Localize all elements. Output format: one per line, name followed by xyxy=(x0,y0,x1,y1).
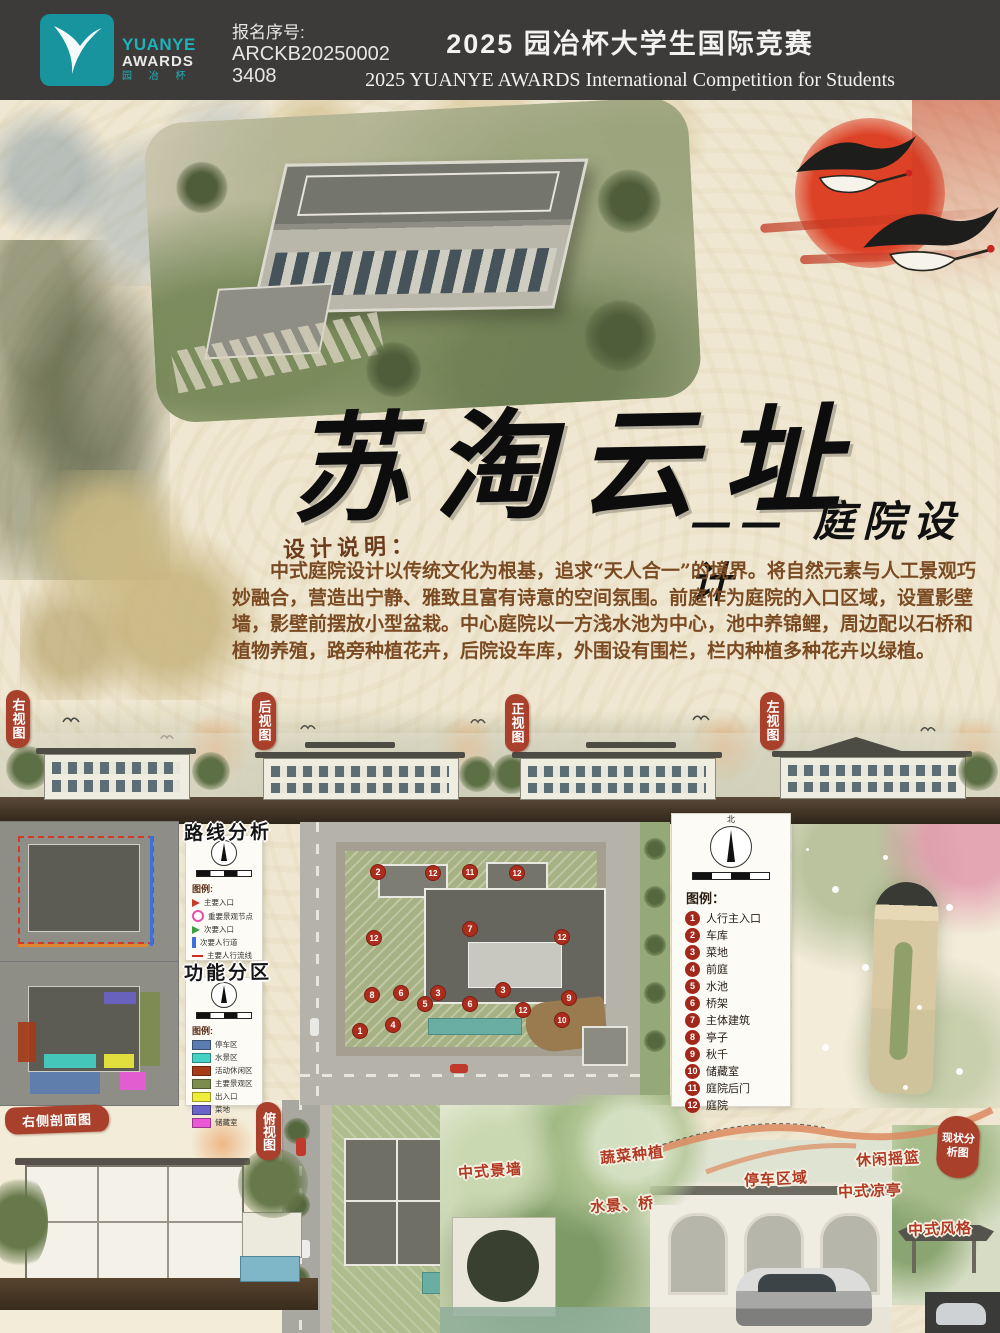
zone-color-swatch xyxy=(192,1105,211,1115)
building-facade-art xyxy=(263,758,459,800)
site-analysis-stamp: 现状分析图 xyxy=(935,1115,980,1179)
header-bar: YUANYE AWARDS 园 冶 杯 报名序号: ARCKB20250002 … xyxy=(0,0,1000,100)
route-line-art xyxy=(18,836,154,944)
street-tree-strip xyxy=(640,822,670,1105)
logo-yuanye-label: YUANYE xyxy=(122,36,196,54)
master-legend-label: 人行主入口 xyxy=(706,910,761,926)
zone-legend-label: 活动休闲区 xyxy=(215,1065,253,1076)
plan-marker: 3 xyxy=(495,982,511,998)
car-art xyxy=(296,1138,306,1156)
inner-courtyard-art xyxy=(468,942,562,988)
zone-legend-label: 出入口 xyxy=(215,1091,238,1102)
zone-legend-label: 停车区 xyxy=(215,1039,238,1050)
master-legend-item: 2车库 xyxy=(685,928,790,942)
zone-legend-label: 储藏室 xyxy=(215,1117,238,1128)
plan-marker: 12 xyxy=(515,1002,531,1018)
zone-legend-item: 出入口 xyxy=(192,1091,262,1102)
legend-number-badge: 11 xyxy=(685,1081,700,1096)
tree-art xyxy=(644,886,666,908)
north-compass-icon xyxy=(211,982,237,1008)
route-analysis-title: 路线分析 xyxy=(184,817,272,846)
plan-marker: 5 xyxy=(417,996,433,1012)
zone-legend-item: 储藏室 xyxy=(192,1117,262,1128)
car-windshield-art xyxy=(758,1274,836,1292)
route-legend-label: 重要景观节点 xyxy=(208,911,253,922)
legend-number-badge: 7 xyxy=(685,1013,700,1028)
zone-legend-item: 活动休闲区 xyxy=(192,1065,262,1076)
plan-marker: 6 xyxy=(393,985,409,1001)
arch-opening-art xyxy=(668,1213,728,1295)
right-elevation-drawing xyxy=(10,740,225,800)
north-compass-icon xyxy=(710,826,752,868)
legend-number-badge: 8 xyxy=(685,1030,700,1045)
tree-art xyxy=(644,1030,666,1052)
watercolor-lady-art xyxy=(792,818,1000,1108)
function-zone-map xyxy=(0,962,178,1105)
legend-number-badge: 9 xyxy=(685,1047,700,1062)
zone-color-swatch xyxy=(192,1079,211,1089)
section-wall-art xyxy=(242,1212,302,1258)
logo-awards-label: AWARDS xyxy=(122,54,196,70)
front-elevation-drawing xyxy=(498,742,738,800)
master-legend-label: 庭院 xyxy=(706,1097,728,1113)
building-facade-art xyxy=(780,757,966,799)
photo-label: 水景、桥 xyxy=(589,1192,654,1217)
zone-legend-label: 水景区 xyxy=(215,1052,238,1063)
master-legend-item: 4前庭 xyxy=(685,962,790,976)
master-legend-label: 亭子 xyxy=(706,1029,728,1045)
back-elevation-drawing xyxy=(245,742,485,800)
zone-legend-item: 水景区 xyxy=(192,1052,262,1063)
window-row-art xyxy=(52,762,180,774)
route-legend-dash-icon xyxy=(192,955,203,957)
roof-art xyxy=(305,742,395,748)
master-legend-label: 水池 xyxy=(706,978,728,994)
master-legend-label: 秋千 xyxy=(706,1046,728,1062)
top-view-stamp: 俯视图 xyxy=(256,1102,281,1160)
plan-marker: 8 xyxy=(364,987,380,1003)
legend-number-badge: 1 xyxy=(685,911,700,926)
tree-art xyxy=(644,982,666,1004)
building-facade-art xyxy=(520,758,716,800)
master-legend-item: 5水池 xyxy=(685,979,790,993)
tree-art xyxy=(644,838,666,860)
plan-marker: 12 xyxy=(509,865,525,881)
plan-marker: 12 xyxy=(425,865,441,881)
master-legend-list: 1人行主入口2车库3菜地4前庭5水池6桥架7主体建筑8亭子9秋千10储藏室11庭… xyxy=(672,911,790,1112)
moon-gate-wall-art xyxy=(452,1217,556,1317)
zone-legend-panel: 图例: 停车区水景区活动休闲区主要景观区出入口菜地储藏室 xyxy=(186,978,262,1105)
front-view-stamp: 正视图 xyxy=(505,694,529,752)
master-legend-label: 菜地 xyxy=(706,944,728,960)
master-legend-label: 车库 xyxy=(706,927,728,943)
compass-needle xyxy=(221,985,227,1003)
photo-label: 休闲摇篮 xyxy=(855,1146,920,1170)
section-house-drawing xyxy=(25,1165,244,1282)
legend-number-badge: 4 xyxy=(685,962,700,977)
route-legend-header: 图例: xyxy=(192,882,262,895)
scale-bar xyxy=(196,870,252,877)
photo-label: 停车区域 xyxy=(743,1166,808,1190)
master-legend-label: 主体建筑 xyxy=(706,1012,750,1028)
route-legend-circle-icon xyxy=(192,910,204,922)
pavilion-post-art xyxy=(912,1241,916,1273)
master-legend-item: 8亭子 xyxy=(685,1030,790,1044)
window-row-art xyxy=(271,783,449,793)
right-view-stamp: 右视图 xyxy=(6,690,30,748)
master-legend-item: 12庭院 xyxy=(685,1098,790,1112)
plan-marker: 11 xyxy=(462,864,478,880)
master-legend-label: 桥架 xyxy=(706,995,728,1011)
plan-marker: 3 xyxy=(430,985,446,1001)
plan-marker: 7 xyxy=(462,921,478,937)
window-row-art xyxy=(788,765,956,776)
section-pool-art xyxy=(240,1256,300,1282)
plan-marker: 6 xyxy=(462,996,478,1012)
zone-legend-list: 停车区水景区活动休闲区主要景观区出入口菜地储藏室 xyxy=(186,1039,262,1128)
scale-bar xyxy=(196,1012,252,1019)
master-legend-item: 7主体建筑 xyxy=(685,1013,790,1027)
car-art xyxy=(936,1303,986,1325)
zone-legend-header: 图例: xyxy=(192,1024,262,1037)
road-lane-art xyxy=(316,822,319,1105)
car-art xyxy=(310,1018,319,1036)
master-legend-item: 9秋千 xyxy=(685,1047,790,1061)
zone-color-swatch xyxy=(192,1066,211,1076)
garage-photo-tile xyxy=(925,1292,1000,1333)
compass-needle xyxy=(221,843,227,861)
route-legend-panel: 图例: 主要入口重要景观节点次要入口次要人行道主要人行流线 xyxy=(186,836,262,960)
zone-patch-art xyxy=(120,1072,146,1090)
logo-text: YUANYE AWARDS 园 冶 杯 xyxy=(122,36,196,82)
building-roof-plan xyxy=(344,1138,452,1266)
logo-y-glyph xyxy=(46,20,108,80)
storage-footprint xyxy=(582,1026,628,1066)
zone-legend-label: 菜地 xyxy=(215,1104,230,1115)
route-legend-label: 主要入口 xyxy=(204,897,234,908)
route-legend-item: 次要人行道 xyxy=(192,937,262,948)
right-section-stamp: 右侧剖面图 xyxy=(5,1104,110,1135)
north-label: 北 xyxy=(672,816,790,824)
left-elevation-drawing xyxy=(752,735,992,800)
plan-marker: 1 xyxy=(352,1023,368,1039)
window-row-art xyxy=(528,766,706,777)
plan-marker: 9 xyxy=(561,990,577,1006)
building-facade-art xyxy=(44,754,190,800)
crane-icon xyxy=(790,128,922,206)
route-legend-arrow-icon xyxy=(192,926,200,934)
master-legend-item: 3菜地 xyxy=(685,945,790,959)
design-notes-text: 中式庭院设计以传统文化为根基，追求“天人合一”的境界。将自然元素与人工景观巧妙融… xyxy=(232,558,988,664)
competition-title-en: 2025 YUANYE AWARDS International Competi… xyxy=(320,69,940,92)
function-zone-title: 功能分区 xyxy=(184,957,272,986)
plan-marker: 2 xyxy=(370,864,386,880)
crane-icon xyxy=(856,198,1000,286)
photo-label: 中式景墙 xyxy=(457,1158,522,1183)
speckle-art xyxy=(806,848,809,851)
master-legend-label: 储藏室 xyxy=(706,1063,739,1079)
roof-parapet-art xyxy=(297,171,560,216)
zone-legend-item: 菜地 xyxy=(192,1104,262,1115)
plan-marker: 10 xyxy=(554,1012,570,1028)
sidewalk-art xyxy=(320,1100,332,1333)
legend-number-badge: 10 xyxy=(685,1064,700,1079)
window-row-art xyxy=(52,780,180,792)
legend-number-badge: 12 xyxy=(685,1098,700,1113)
route-analysis-map xyxy=(0,822,178,962)
pond-art xyxy=(440,1307,655,1333)
master-legend-label: 前庭 xyxy=(706,961,728,977)
route-legend-item: 重要景观节点 xyxy=(192,910,262,922)
tree-art xyxy=(192,752,230,790)
route-line-art xyxy=(150,836,153,946)
route-legend-label: 次要人行道 xyxy=(200,937,238,948)
legend-number-badge: 5 xyxy=(685,979,700,994)
zone-patch-art xyxy=(140,992,160,1066)
master-legend-item: 1人行主入口 xyxy=(685,911,790,925)
zone-color-swatch xyxy=(192,1118,211,1128)
zone-legend-item: 主要景观区 xyxy=(192,1078,262,1089)
master-site-plan: 2121112127128633956121041 xyxy=(300,822,670,1105)
scale-bar xyxy=(692,872,770,880)
route-legend-item: 主要入口 xyxy=(192,897,262,908)
plan-marker: 12 xyxy=(554,929,570,945)
plan-marker: 4 xyxy=(385,1017,401,1033)
pool-art xyxy=(428,1018,522,1035)
zone-patch-art xyxy=(30,1072,100,1094)
master-legend-label: 庭院后门 xyxy=(706,1080,750,1096)
elevation-ground-band xyxy=(0,797,1000,824)
zone-patch-art xyxy=(104,1054,134,1068)
legend-number-badge: 2 xyxy=(685,928,700,943)
competition-title-cn: 2025 园冶杯大学生国际竞赛 xyxy=(320,22,940,61)
route-legend-item: 次要入口 xyxy=(192,924,262,935)
route-legend-bar-icon xyxy=(192,937,196,948)
competition-poster: YUANYE AWARDS 园 冶 杯 报名序号: ARCKB20250002 … xyxy=(0,0,1000,1333)
yuanye-logo-icon xyxy=(40,14,114,86)
zone-color-swatch xyxy=(192,1040,211,1050)
left-view-stamp: 左视图 xyxy=(760,692,784,750)
master-legend-panel: 北 图例： 1人行主入口2车库3菜地4前庭5水池6桥架7主体建筑8亭子9秋千10… xyxy=(672,814,790,1106)
route-legend-list: 主要入口重要景观节点次要入口次要人行道主要人行流线 xyxy=(186,897,262,961)
window-row-art xyxy=(788,782,956,792)
tree-art xyxy=(459,756,495,792)
route-line-art xyxy=(18,944,148,947)
tree-art xyxy=(644,934,666,956)
zone-legend-item: 停车区 xyxy=(192,1039,262,1050)
route-legend-label: 次要入口 xyxy=(204,924,234,935)
moon-gate-opening-art xyxy=(467,1230,539,1302)
zone-patch-art xyxy=(104,992,136,1004)
car-art xyxy=(450,1064,468,1073)
plan-marker: 12 xyxy=(366,930,382,946)
zone-color-swatch xyxy=(192,1092,211,1102)
zone-color-swatch xyxy=(192,1053,211,1063)
back-view-stamp: 后视图 xyxy=(252,692,276,750)
roof-art xyxy=(586,742,676,748)
road-lane-art xyxy=(300,1074,670,1077)
route-legend-arrow-icon xyxy=(192,899,200,907)
section-ground-band xyxy=(0,1278,318,1310)
photo-label: 中式凉亭 xyxy=(838,1179,903,1202)
master-legend-item: 10储藏室 xyxy=(685,1064,790,1078)
compass-needle xyxy=(727,830,735,862)
window-row-art xyxy=(528,783,706,793)
master-legend-item: 11庭院后门 xyxy=(685,1081,790,1095)
logo-cn-label: 园 冶 杯 xyxy=(122,72,196,83)
window-row-art xyxy=(271,766,449,777)
photo-label: 中式风格 xyxy=(908,1217,973,1240)
legend-number-badge: 6 xyxy=(685,996,700,1011)
tree-art xyxy=(958,751,998,791)
zone-legend-label: 主要景观区 xyxy=(215,1078,253,1089)
pavilion-post-art xyxy=(972,1241,976,1273)
section-roof-art xyxy=(15,1158,250,1165)
zone-patch-art xyxy=(18,1022,36,1062)
master-legend-item: 6桥架 xyxy=(685,996,790,1010)
main-building-footprint xyxy=(424,888,606,1004)
master-legend-header: 图例： xyxy=(686,888,790,907)
parked-car-art xyxy=(736,1268,872,1326)
competition-titles: 2025 园冶杯大学生国际竞赛 2025 YUANYE AWARDS Inter… xyxy=(320,22,940,92)
legend-number-badge: 3 xyxy=(685,945,700,960)
zone-patch-art xyxy=(44,1054,96,1068)
